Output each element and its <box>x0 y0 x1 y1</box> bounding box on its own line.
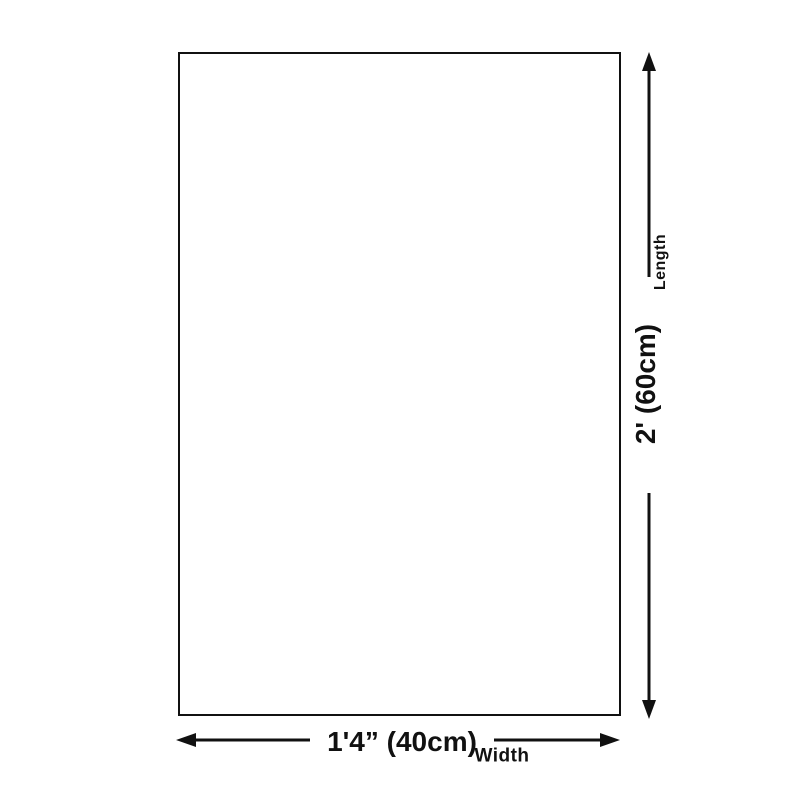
width-dimension-value: 1'4” (40cm) <box>327 728 477 756</box>
dimension-diagram: Length 2' (60cm) 1'4” (40cm) Width <box>0 0 800 800</box>
length-arrow-down-head-icon <box>642 700 656 719</box>
length-axis-label: Length <box>653 234 669 290</box>
length-dimension-value: 2' (60cm) <box>632 324 660 444</box>
width-arrow-right-head-icon <box>600 733 620 747</box>
dimension-arrows <box>0 0 800 800</box>
width-axis-label: Width <box>474 747 529 766</box>
